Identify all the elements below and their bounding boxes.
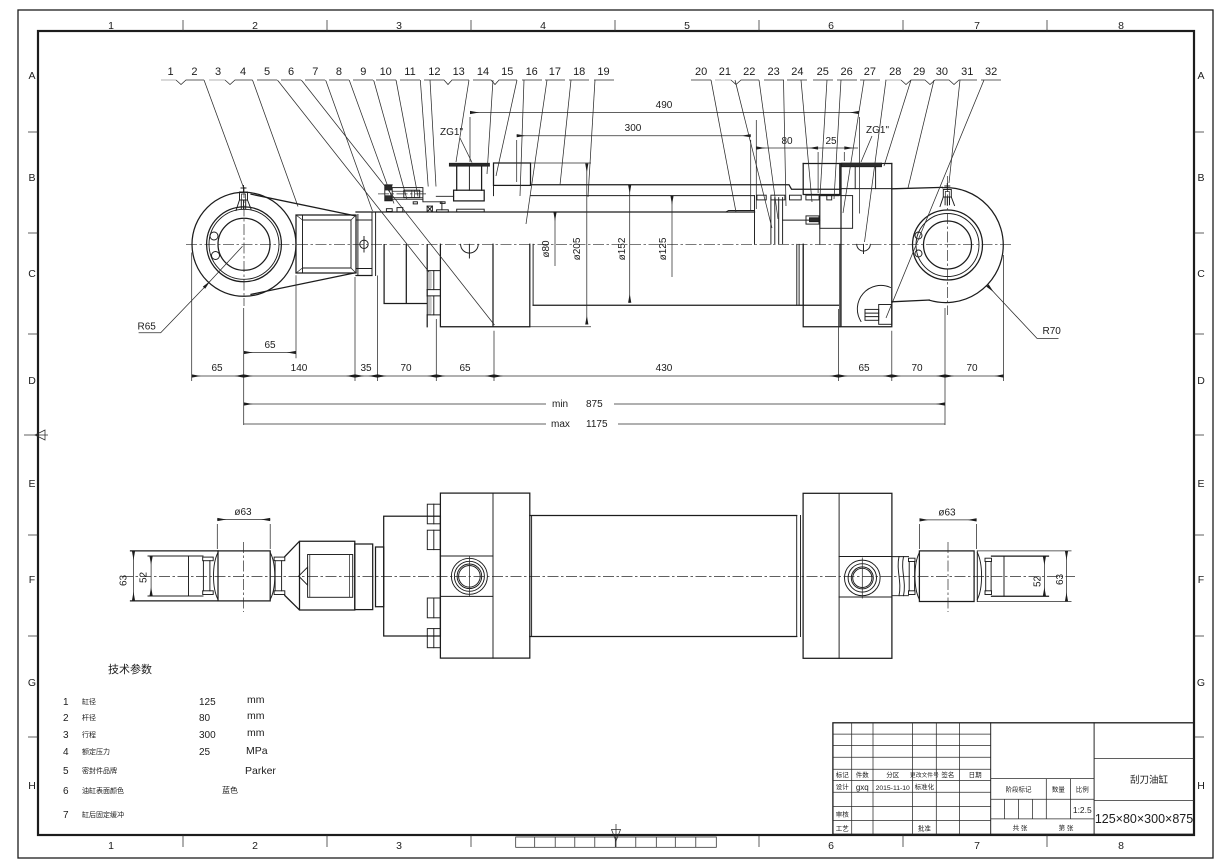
svg-text:D: D — [28, 375, 36, 387]
svg-text:21: 21 — [719, 66, 731, 78]
svg-text:G: G — [1197, 677, 1205, 689]
svg-text:ø152: ø152 — [617, 237, 628, 260]
svg-text:数量: 数量 — [1052, 785, 1066, 794]
svg-text:1175: 1175 — [586, 419, 608, 430]
svg-text:63: 63 — [1055, 573, 1066, 585]
svg-text:4: 4 — [540, 20, 546, 32]
svg-text:H: H — [28, 780, 36, 792]
svg-text:Parker: Parker — [245, 765, 276, 777]
svg-text:1: 1 — [167, 66, 173, 78]
svg-text:70: 70 — [400, 363, 412, 374]
svg-text:7: 7 — [312, 66, 318, 78]
svg-text:5: 5 — [63, 766, 69, 777]
svg-text:26: 26 — [840, 66, 852, 78]
svg-text:工艺: 工艺 — [836, 825, 850, 833]
svg-text:C: C — [28, 268, 36, 280]
svg-text:875: 875 — [586, 399, 603, 410]
svg-text:2: 2 — [63, 713, 69, 724]
svg-text:B: B — [1197, 172, 1204, 184]
svg-text:29: 29 — [913, 66, 925, 78]
svg-text:1: 1 — [108, 20, 114, 32]
svg-text:12: 12 — [428, 66, 440, 78]
svg-text:65: 65 — [858, 363, 870, 374]
svg-text:23: 23 — [767, 66, 779, 78]
svg-text:1:2.5: 1:2.5 — [1073, 805, 1092, 815]
svg-text:24: 24 — [791, 66, 803, 78]
svg-text:mm: mm — [247, 710, 265, 722]
svg-text:6: 6 — [63, 786, 69, 797]
svg-text:70: 70 — [966, 363, 978, 374]
svg-text:A: A — [1197, 70, 1204, 82]
svg-text:16: 16 — [526, 66, 538, 78]
svg-text:6: 6 — [828, 20, 834, 32]
svg-text:80: 80 — [781, 136, 793, 147]
svg-text:ø63: ø63 — [234, 507, 252, 518]
svg-text:E: E — [1197, 478, 1204, 490]
svg-text:E: E — [28, 478, 35, 490]
svg-text:B: B — [28, 172, 35, 184]
svg-text:1: 1 — [108, 840, 114, 852]
svg-text:3: 3 — [215, 66, 221, 78]
svg-text:32: 32 — [985, 66, 997, 78]
svg-text:14: 14 — [477, 66, 489, 78]
svg-text:gxq: gxq — [856, 783, 869, 792]
svg-text:13: 13 — [453, 66, 465, 78]
svg-text:490: 490 — [656, 100, 673, 111]
svg-text:8: 8 — [336, 66, 342, 78]
svg-text:300: 300 — [199, 730, 216, 741]
svg-text:技术参数: 技术参数 — [108, 662, 152, 676]
svg-text:ø205: ø205 — [572, 237, 583, 260]
svg-text:额定压力: 额定压力 — [82, 747, 110, 756]
svg-text:G: G — [28, 677, 36, 689]
svg-text:蓝色: 蓝色 — [222, 785, 238, 795]
svg-text:52: 52 — [1033, 575, 1044, 587]
svg-text:63: 63 — [119, 574, 130, 586]
svg-text:7: 7 — [974, 840, 980, 852]
svg-text:比例: 比例 — [1076, 785, 1089, 794]
svg-text:3: 3 — [396, 20, 402, 32]
svg-text:密封件品牌: 密封件品牌 — [82, 766, 117, 775]
svg-text:C: C — [1197, 268, 1205, 280]
svg-text:125: 125 — [199, 697, 216, 708]
svg-text:18: 18 — [573, 66, 585, 78]
svg-text:35: 35 — [360, 363, 372, 374]
svg-text:65: 65 — [211, 363, 223, 374]
svg-text:28: 28 — [889, 66, 901, 78]
svg-text:15: 15 — [501, 66, 513, 78]
svg-text:25: 25 — [817, 66, 829, 78]
svg-text:7: 7 — [63, 810, 69, 821]
svg-text:R70: R70 — [1043, 326, 1062, 337]
svg-text:3: 3 — [63, 730, 69, 741]
svg-text:300: 300 — [625, 123, 642, 134]
svg-text:第 张: 第 张 — [1059, 823, 1074, 832]
svg-text:27: 27 — [864, 66, 876, 78]
svg-text:缸后固定缓冲: 缸后固定缓冲 — [82, 810, 124, 819]
svg-text:4: 4 — [240, 66, 246, 78]
svg-text:件数: 件数 — [856, 770, 870, 779]
svg-text:2: 2 — [191, 66, 197, 78]
svg-text:max: max — [551, 419, 570, 430]
svg-text:2015-11-10: 2015-11-10 — [876, 785, 910, 792]
svg-text:阶段标记: 阶段标记 — [1006, 785, 1033, 794]
svg-text:3: 3 — [396, 840, 402, 852]
svg-text:F: F — [29, 574, 35, 586]
svg-text:5: 5 — [684, 20, 690, 32]
svg-text:22: 22 — [743, 66, 755, 78]
svg-text:8: 8 — [1118, 20, 1124, 32]
svg-text:设计: 设计 — [836, 782, 850, 791]
svg-text:65: 65 — [264, 340, 276, 351]
svg-text:杆径: 杆径 — [82, 713, 96, 722]
svg-text:5: 5 — [264, 66, 270, 78]
svg-text:更改文件号: 更改文件号 — [910, 771, 939, 779]
svg-text:4: 4 — [63, 747, 69, 758]
svg-text:日期: 日期 — [969, 771, 983, 779]
svg-text:25: 25 — [199, 747, 211, 758]
svg-text:min: min — [552, 399, 568, 410]
svg-text:A: A — [28, 70, 35, 82]
svg-text:6: 6 — [828, 840, 834, 852]
svg-text:ø63: ø63 — [938, 508, 956, 519]
svg-text:ø80: ø80 — [541, 240, 552, 258]
svg-text:共 张: 共 张 — [1013, 823, 1028, 832]
svg-text:ZG1": ZG1" — [866, 125, 889, 136]
svg-text:审核: 审核 — [836, 810, 850, 819]
svg-text:6: 6 — [288, 66, 294, 78]
svg-text:31: 31 — [961, 66, 973, 78]
svg-text:签名: 签名 — [941, 770, 954, 779]
svg-text:缸径: 缸径 — [82, 697, 96, 706]
svg-text:行程: 行程 — [82, 730, 96, 739]
svg-text:刮刀油缸: 刮刀油缸 — [1130, 774, 1169, 786]
svg-text:批准: 批准 — [918, 824, 932, 833]
svg-text:11: 11 — [404, 66, 415, 78]
svg-text:2: 2 — [252, 20, 258, 32]
svg-text:8: 8 — [1118, 840, 1124, 852]
svg-text:430: 430 — [656, 363, 673, 374]
svg-text:D: D — [1197, 375, 1205, 387]
svg-text:油缸表面颜色: 油缸表面颜色 — [82, 786, 124, 795]
svg-text:2: 2 — [252, 840, 258, 852]
svg-text:R65: R65 — [138, 322, 157, 333]
svg-text:70: 70 — [911, 363, 923, 374]
svg-text:分区: 分区 — [886, 770, 900, 779]
svg-text:F: F — [1198, 574, 1204, 586]
svg-text:H: H — [1197, 780, 1205, 792]
svg-text:9: 9 — [360, 66, 366, 78]
svg-text:30: 30 — [936, 66, 948, 78]
svg-text:125×80×300×875: 125×80×300×875 — [1095, 812, 1193, 826]
svg-text:17: 17 — [549, 66, 561, 78]
svg-text:mm: mm — [247, 694, 265, 706]
svg-text:ø125: ø125 — [658, 237, 669, 260]
svg-text:19: 19 — [597, 66, 609, 78]
svg-text:65: 65 — [459, 363, 471, 374]
svg-text:标记: 标记 — [836, 770, 850, 779]
svg-text:20: 20 — [695, 66, 707, 78]
svg-text:标准化: 标准化 — [915, 782, 935, 791]
svg-text:1: 1 — [63, 697, 69, 708]
svg-text:140: 140 — [291, 363, 308, 374]
svg-text:80: 80 — [199, 713, 211, 724]
svg-text:10: 10 — [380, 66, 392, 78]
svg-text:7: 7 — [974, 20, 980, 32]
svg-text:MPa: MPa — [246, 745, 268, 757]
svg-text:52: 52 — [139, 571, 150, 583]
svg-text:25: 25 — [825, 136, 837, 147]
svg-text:mm: mm — [247, 727, 265, 739]
